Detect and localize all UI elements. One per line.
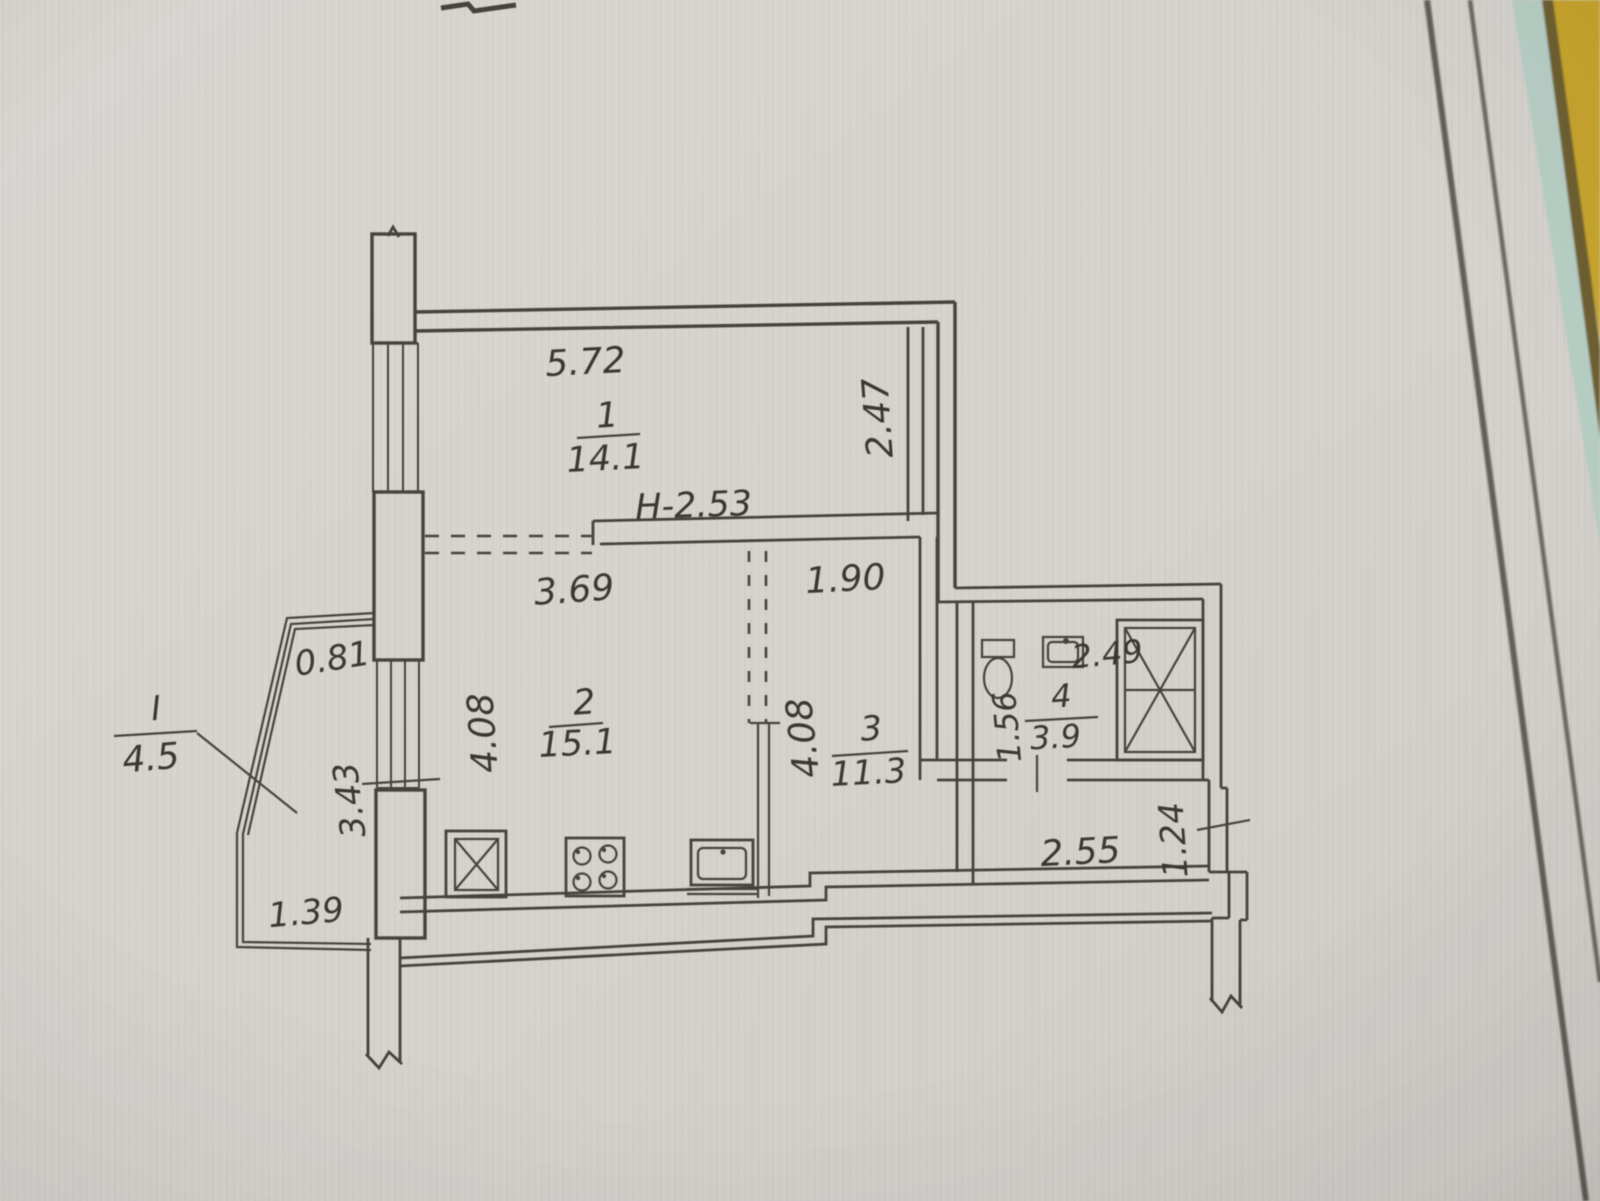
floorplan-svg: 5.72 1 14.1 2.47 H-2.53 3.69 2 15.1 4.08… xyxy=(0,0,1600,1201)
photo-vignette xyxy=(0,0,1600,1201)
floor-plan-photo: 5.72 1 14.1 2.47 H-2.53 3.69 2 15.1 4.08… xyxy=(0,0,1600,1201)
